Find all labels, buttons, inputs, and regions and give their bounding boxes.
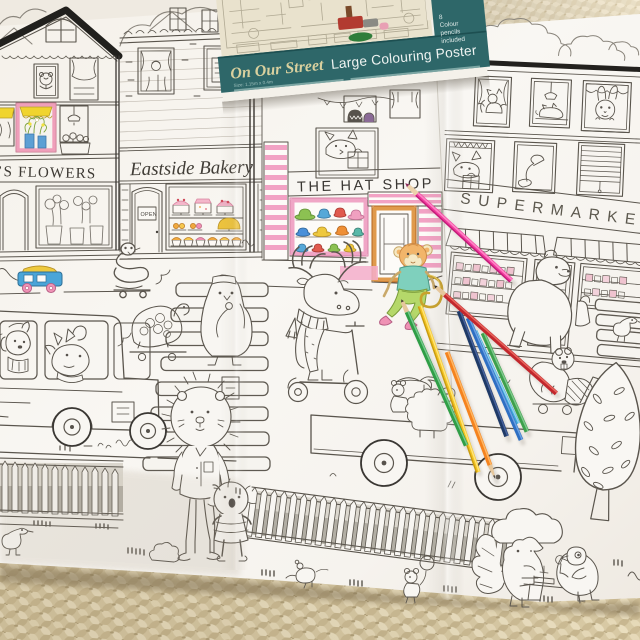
svg-text:E’S FLOWERS: E’S FLOWERS	[0, 164, 97, 182]
svg-text:OPEN: OPEN	[141, 212, 157, 218]
